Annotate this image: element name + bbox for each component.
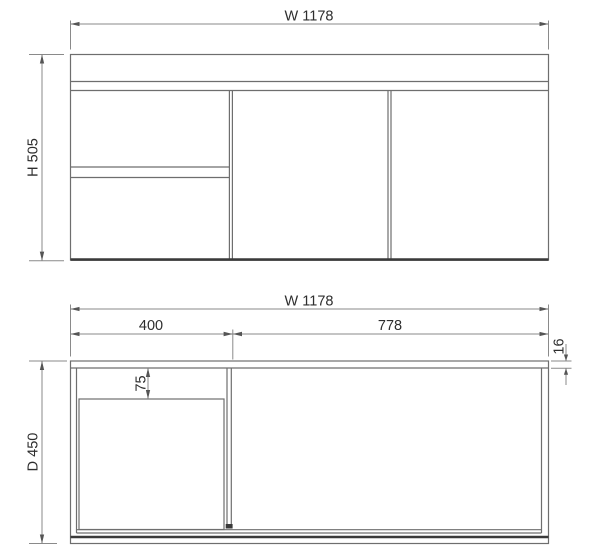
plan-drawer-box-outline	[79, 399, 224, 530]
plan-depth-label: D 450	[26, 433, 42, 472]
plan-width-label: W 1178	[285, 294, 334, 310]
front-height-label: H 505	[26, 138, 42, 177]
plan-section-dimensions: 400 778	[71, 318, 549, 360]
technical-drawing-canvas: W 1178 H 505 W 1178	[0, 0, 600, 557]
front-height-dimension: H 505	[26, 55, 65, 261]
plan-offset-label: 75	[134, 375, 150, 391]
front-width-dimension: W 1178	[71, 9, 549, 50]
plan-view: W 1178 400 778 16 75	[26, 294, 572, 544]
plan-divider-end-cap	[226, 524, 233, 529]
plan-depth-dimension: D 450	[26, 361, 68, 544]
plan-offset-dimension: 75	[134, 368, 150, 399]
plan-panel-thickness-dimension: 16	[551, 338, 572, 385]
front-width-label: W 1178	[285, 9, 334, 25]
front-elevation-view: W 1178 H 505	[26, 9, 549, 261]
plan-thickness-arrow-up	[564, 368, 568, 375]
cabinet-drawing-svg: W 1178 H 505 W 1178	[0, 0, 600, 557]
front-cabinet-outline	[71, 55, 549, 261]
plan-left-width-label: 400	[139, 318, 163, 334]
plan-right-width-label: 778	[378, 318, 402, 334]
plan-panel-thickness-label: 16	[552, 338, 568, 354]
